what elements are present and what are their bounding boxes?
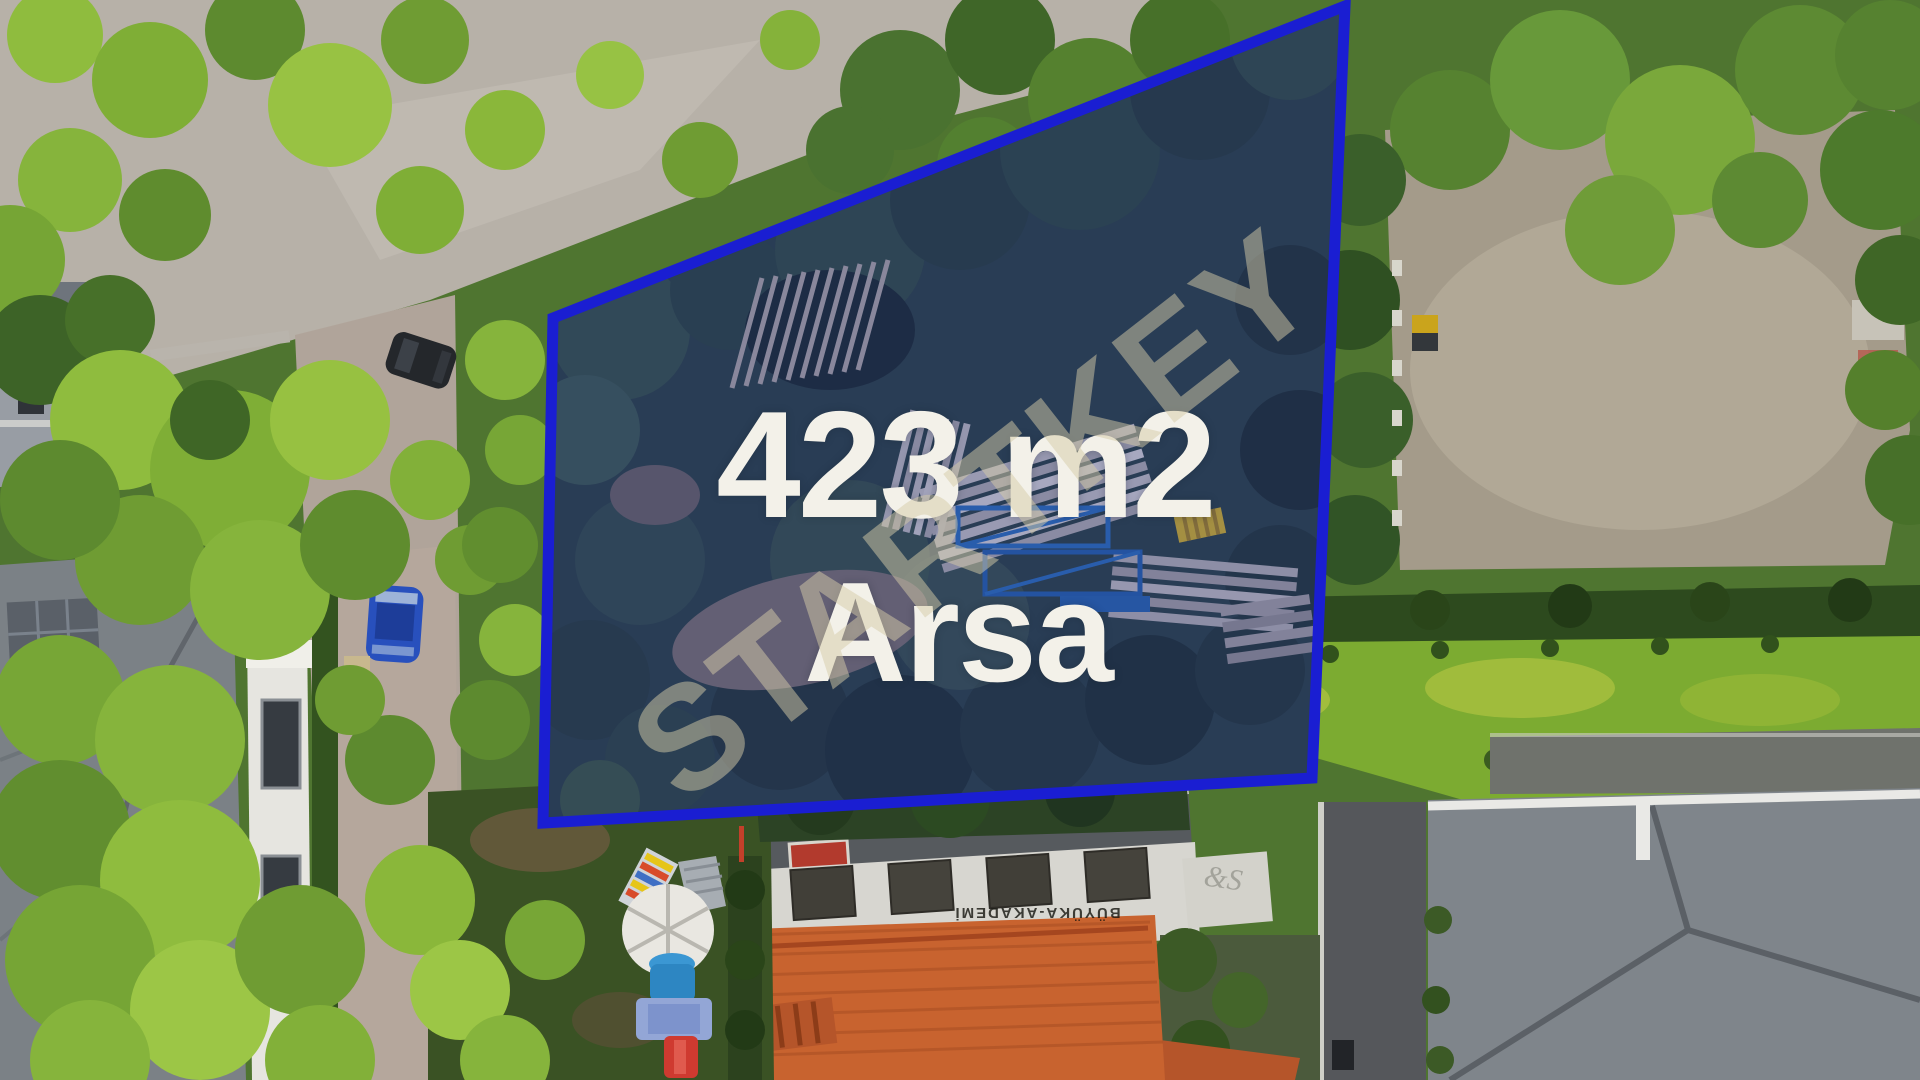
villa-roof-right	[1422, 788, 1920, 1080]
rooftop-sign: BÜYÜKA-AKADEMİ	[952, 900, 1122, 926]
patio-right	[1490, 728, 1920, 794]
driveway-right	[1318, 802, 1426, 1080]
aerial-photo: BÜYÜKA-AKADEMİ &S 423 m2 Arsa STARTKEY	[0, 0, 1920, 1080]
wall-decor-sign: &S	[1202, 859, 1245, 898]
